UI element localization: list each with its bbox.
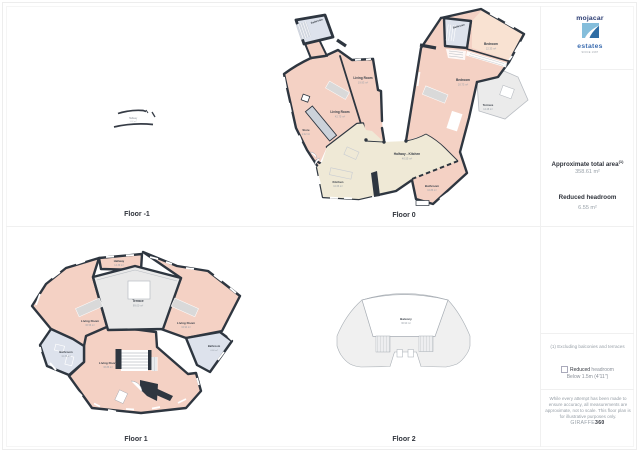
svg-text:22.33 m²: 22.33 m² — [486, 47, 496, 51]
svg-text:1.92 m²: 1.92 m² — [130, 120, 137, 123]
svg-text:Living Room: Living Room — [353, 76, 372, 80]
svg-text:36.56 m²: 36.56 m² — [85, 324, 95, 327]
svg-text:Living Room: Living Room — [177, 321, 195, 325]
svg-text:Living Room: Living Room — [330, 110, 349, 114]
svg-text:11.36 m²: 11.36 m² — [61, 355, 70, 358]
svg-text:14.39 m²: 14.39 m² — [114, 264, 124, 267]
svg-text:Store: Store — [302, 128, 310, 132]
svg-text:10.86 m²: 10.86 m² — [427, 189, 437, 192]
svg-text:Balcony: Balcony — [400, 317, 412, 321]
svg-text:36.90 m²: 36.90 m² — [401, 322, 411, 325]
svg-text:20.73 m²: 20.73 m² — [458, 83, 468, 87]
svg-text:4.66 m²: 4.66 m² — [210, 349, 218, 352]
svg-text:12.28 m²: 12.28 m² — [483, 108, 493, 111]
svg-text:Kitchen: Kitchen — [332, 180, 343, 184]
svg-text:Bathroom: Bathroom — [425, 184, 439, 188]
svg-text:19.93 m²: 19.93 m² — [358, 81, 368, 85]
svg-text:Living Room: Living Room — [81, 319, 99, 323]
svg-text:2.42 m²: 2.42 m² — [302, 133, 310, 136]
svg-text:Living Room: Living Room — [99, 361, 117, 365]
svg-text:Hallway - Kitchen: Hallway - Kitchen — [394, 152, 420, 156]
svg-text:Hallway: Hallway — [114, 259, 125, 263]
svg-text:89.00 m²: 89.00 m² — [133, 304, 143, 308]
svg-text:42.75 m²: 42.75 m² — [335, 115, 345, 119]
svg-text:36.86 m²: 36.86 m² — [103, 366, 113, 369]
svg-text:Bedroom: Bedroom — [484, 42, 498, 46]
svg-text:Bathroom: Bathroom — [208, 344, 221, 348]
svg-text:Hallway: Hallway — [129, 117, 138, 120]
svg-text:34.94 m²: 34.94 m² — [181, 326, 191, 329]
svg-text:Bedroom: Bedroom — [456, 78, 470, 82]
svg-text:Bathroom: Bathroom — [59, 350, 73, 354]
svg-text:40.55 m²: 40.55 m² — [402, 157, 412, 161]
svg-text:Terrace: Terrace — [132, 299, 144, 303]
svg-text:10.66 m²: 10.66 m² — [333, 185, 343, 188]
svg-text:Terrace: Terrace — [483, 103, 494, 107]
